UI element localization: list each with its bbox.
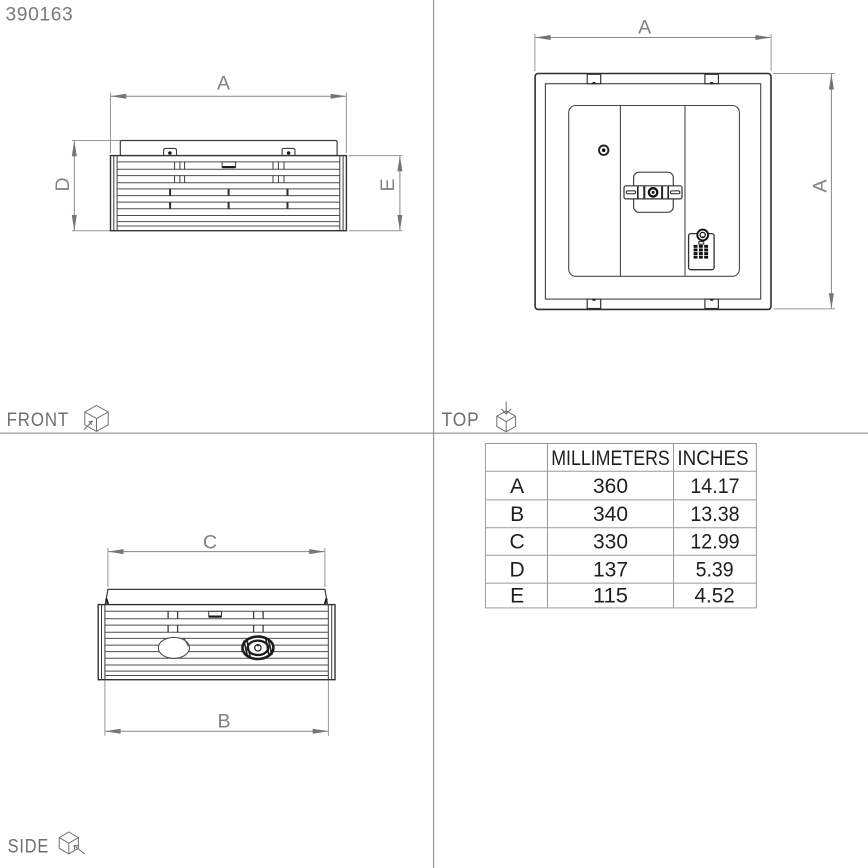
- svg-text:E: E: [510, 585, 524, 608]
- svg-text:B: B: [510, 503, 524, 526]
- svg-text:B: B: [217, 711, 230, 733]
- svg-text:360: 360: [593, 475, 628, 498]
- svg-text:D: D: [510, 558, 525, 581]
- svg-text:D: D: [52, 177, 74, 191]
- svg-text:13.38: 13.38: [690, 503, 739, 526]
- svg-text:115: 115: [593, 585, 628, 608]
- svg-text:12.99: 12.99: [690, 531, 739, 554]
- svg-text:C: C: [510, 531, 525, 554]
- svg-text:137: 137: [593, 558, 628, 581]
- svg-text:FRONT: FRONT: [7, 409, 70, 431]
- svg-text:5.39: 5.39: [696, 558, 734, 581]
- svg-text:TOP: TOP: [442, 409, 480, 431]
- svg-text:390163: 390163: [6, 3, 74, 25]
- svg-text:E: E: [377, 178, 399, 191]
- svg-text:A: A: [638, 17, 651, 39]
- svg-text:340: 340: [593, 503, 628, 526]
- svg-text:A: A: [809, 179, 831, 192]
- svg-text:SIDE: SIDE: [8, 835, 50, 857]
- svg-text:14.17: 14.17: [690, 475, 739, 498]
- svg-text:4.52: 4.52: [694, 585, 734, 608]
- svg-text:MILLIMETERS: MILLIMETERS: [551, 447, 670, 470]
- svg-text:A: A: [217, 73, 230, 95]
- svg-text:C: C: [203, 532, 217, 554]
- svg-text:330: 330: [593, 531, 628, 554]
- svg-text:A: A: [510, 475, 524, 498]
- svg-text:INCHES: INCHES: [677, 447, 748, 470]
